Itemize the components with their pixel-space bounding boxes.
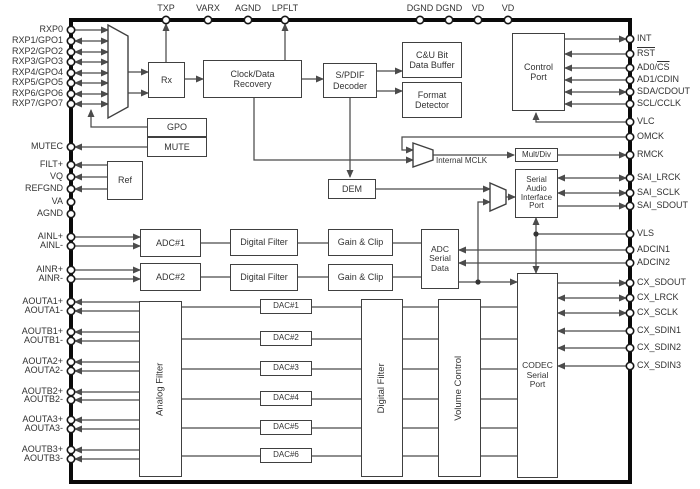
pin-label-CX_LRCK: CX_LRCK [637,292,679,303]
pin-label-AOUTB2-: AOUTB2- [2,394,63,405]
pin-label-MUTEC: MUTEC [2,141,63,152]
ic-block-diagram: RxClock/Data RecoveryS/PDIF DecoderC&U B… [0,0,700,489]
pin-label-AOUTB1-: AOUTB1- [2,335,63,346]
pin-label-INT: INT [637,33,652,44]
pin-label-SAI_SDOUT: SAI_SDOUT [637,200,688,211]
pin-label-RXP7/GPO7: RXP7/GPO7 [2,98,63,109]
pin-label-AD1/CDIN: AD1/CDIN [637,74,679,85]
pin-label-CX_SDIN1: CX_SDIN1 [637,325,681,336]
pin-labels-layer: RXP0RXP1/GPO1RXP2/GPO2RXP3/GPO3RXP4/GPO4… [0,0,700,489]
pin-label-CX_SDIN3: CX_SDIN3 [637,360,681,371]
pin-label-VQ: VQ [2,171,63,182]
pin-label-AOUTA2-: AOUTA2- [2,365,63,376]
pin-label-ADCIN1: ADCIN1 [637,244,670,255]
pin-label-SCL/CCLK: SCL/CCLK [637,98,681,109]
pin-label-VD: VD [478,3,538,14]
pin-label-RXP0: RXP0 [2,24,63,35]
pin-label-CX_SCLK: CX_SCLK [637,307,678,318]
pin-label-VA: VA [2,196,63,207]
overlined-text: RST [637,48,655,58]
pin-label-SAI_LRCK: SAI_LRCK [637,172,681,183]
pin-label-SDA/CDOUT: SDA/CDOUT [637,86,690,97]
pin-label-CX_SDOUT: CX_SDOUT [637,277,686,288]
pin-label-SAI_SCLK: SAI_SCLK [637,187,680,198]
pin-label-CX_SDIN2: CX_SDIN2 [637,342,681,353]
pin-label-OMCK: OMCK [637,131,664,142]
pin-label-AD0/CS: AD0/CS [637,62,670,73]
pin-label-ADCIN2: ADCIN2 [637,257,670,268]
pin-label-AOUTB3-: AOUTB3- [2,453,63,464]
pin-label-AINL-: AINL- [2,240,63,251]
pin-label-RST: RST [637,48,655,59]
pin-label-AGND: AGND [2,208,63,219]
pin-label-RXP1/GPO1: RXP1/GPO1 [2,35,63,46]
pin-label-LPFLT: LPFLT [255,3,315,14]
label-internal-mclk: Internal MCLK [436,156,487,165]
overlined-text: CS [657,62,670,72]
pin-label-AINR-: AINR- [2,273,63,284]
pin-label-AOUTA1-: AOUTA1- [2,305,63,316]
pin-label-VLC: VLC [637,116,655,127]
pin-label-FILT+: FILT+ [2,159,63,170]
pin-label-RXP5/GPO5: RXP5/GPO5 [2,77,63,88]
pin-label-RMCK: RMCK [637,149,664,160]
pin-label-REFGND: REFGND [2,183,63,194]
pin-label-VLS: VLS [637,228,654,239]
pin-label-RXP3/GPO3: RXP3/GPO3 [2,56,63,67]
pin-label-AOUTA3-: AOUTA3- [2,423,63,434]
